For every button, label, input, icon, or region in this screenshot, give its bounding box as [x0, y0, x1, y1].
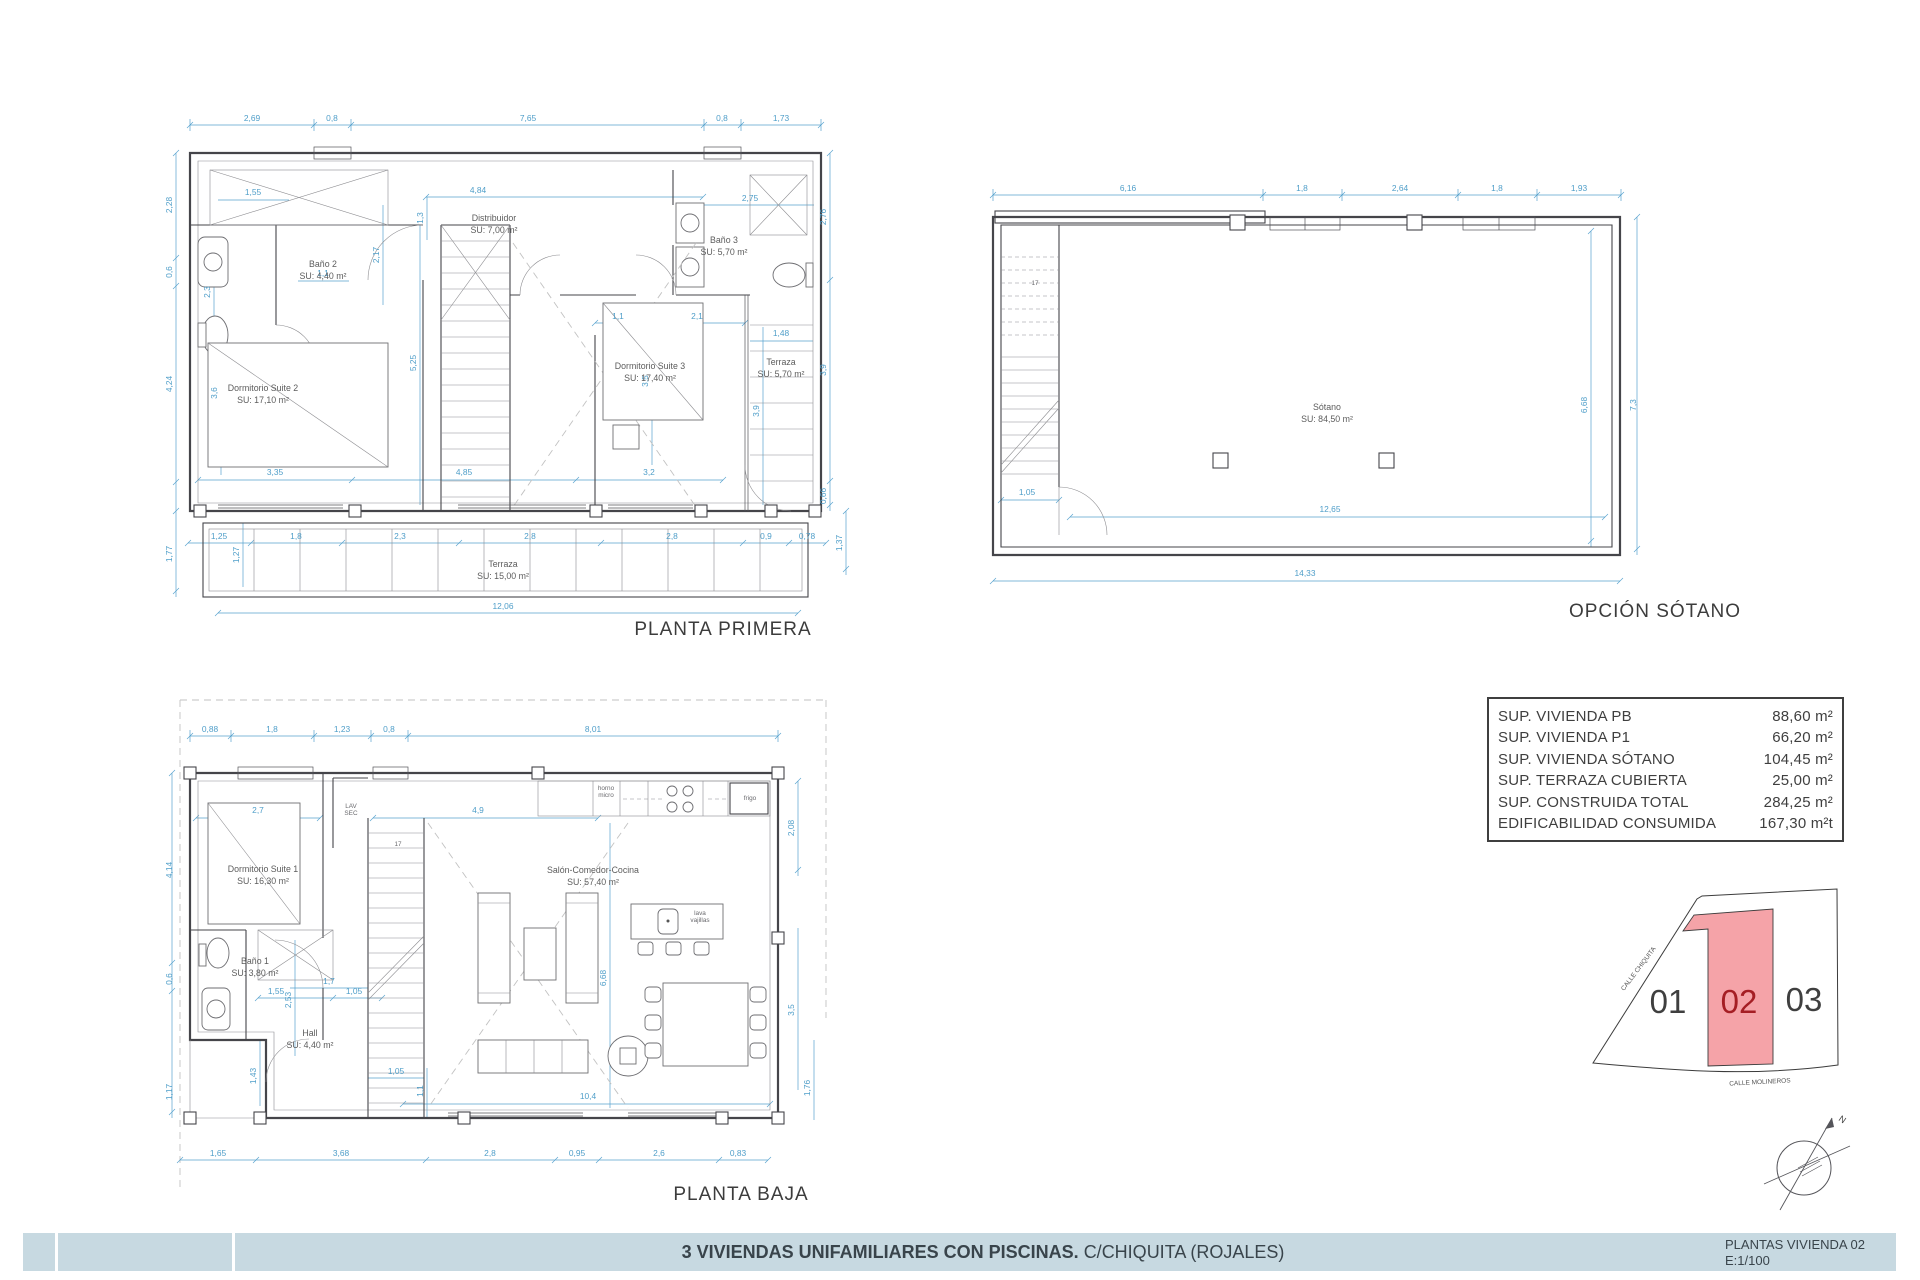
dim-label: 1,1	[415, 1085, 425, 1097]
opcion-sotano-drawing: 6,161,82,641,81,931,0512,656,687,314,33 …	[975, 165, 1675, 630]
room-label: Baño 1SU: 3,80 m²	[232, 956, 279, 978]
dim-label: 1,37	[834, 535, 844, 552]
dim-label: 1,3	[415, 212, 425, 224]
dim-label: 4,9	[472, 805, 484, 815]
dim-label: 1,05	[388, 1066, 405, 1076]
dim-label: 3,2	[643, 467, 655, 477]
dim-label: 0,83	[730, 1148, 747, 1158]
dim-label: 0,95	[569, 1148, 586, 1158]
dim-label: 4,85	[456, 467, 473, 477]
dim-label: 0,6	[164, 973, 174, 985]
row-value: 284,25 m²	[1764, 792, 1833, 813]
dim-label: 3,6	[209, 387, 219, 399]
room-label: hornomicro	[598, 785, 615, 799]
sheet-scale: E:1/100	[1725, 1253, 1865, 1269]
dimension-labels: 6,161,82,641,81,931,0512,656,687,314,33	[1019, 183, 1638, 578]
dim-label: 1,8	[290, 531, 302, 541]
dim-label: 12,65	[1320, 504, 1341, 514]
sheet-info: PLANTAS VIVIENDA 02 E:1/100	[1725, 1237, 1865, 1269]
row-value: 25,00 m²	[1772, 770, 1833, 791]
dim-label: 6,16	[1120, 183, 1137, 193]
dim-label: 1,7	[323, 976, 335, 986]
table-row: SUP. CONSTRUIDA TOTAL284,25 m²	[1498, 792, 1833, 813]
dim-label: 0,8	[326, 113, 338, 123]
dim-label: 1,17	[164, 1084, 174, 1101]
dim-label: 0,78	[799, 531, 816, 541]
room-label: frigo	[744, 795, 757, 802]
dim-label: 0,6	[164, 266, 174, 278]
room-label: TerrazaSU: 5,70 m²	[758, 357, 805, 379]
plan-title-sotano: OPCIÓN SÓTANO	[1569, 600, 1741, 622]
room-labels: SótanoSU: 84,50 m²	[1301, 402, 1353, 424]
surface-area-table: SUP. VIVIENDA PB88,60 m² SUP. VIVIENDA P…	[1487, 697, 1844, 842]
dim-label: 2,8	[484, 1148, 496, 1158]
plot-03-label: 03	[1786, 981, 1823, 1018]
row-label: EDIFICABILIDAD CONSUMIDA	[1498, 813, 1716, 834]
row-label: SUP. TERRAZA CUBIERTA	[1498, 770, 1687, 791]
dim-label: 1,8	[266, 724, 278, 734]
row-label: SUP. VIVIENDA SÓTANO	[1498, 749, 1675, 770]
dim-label: 1,05	[1019, 487, 1036, 497]
dim-label: 1,8	[1491, 183, 1503, 193]
dim-label: 1,43	[248, 1068, 258, 1085]
appliance-labels: LAVSEC17hornomicrofrigolavavajillas	[344, 785, 756, 924]
row-value: 66,20 m²	[1772, 727, 1833, 748]
planta-baja-drawing: 0,881,81,230,88,012,74,92,083,51,764,140…	[158, 688, 858, 1233]
dimension-lines	[990, 189, 1640, 584]
room-label: 17	[394, 841, 402, 848]
site-plot-diagram: 01 02 03 CALLE CHIQUITA CALLE MOLINEROS	[1580, 878, 1860, 1096]
dim-label: 3,9	[751, 405, 761, 417]
dim-label: 2,8	[524, 531, 536, 541]
planta-primera-drawing: 2,690,87,650,81,731,554,842,751,32,172,3…	[158, 75, 858, 650]
dim-label: 1,55	[245, 187, 262, 197]
dim-label: 3,5	[786, 1004, 796, 1016]
room-label: Salón-Comedor-CocinaSU: 57,40 m²	[547, 865, 639, 887]
footer-title-bar: 3 VIVIENDAS UNIFAMILIARES CON PISCINAS. …	[235, 1233, 1896, 1271]
dim-label: 1,77	[164, 546, 174, 563]
dim-label: 2,3	[394, 531, 406, 541]
dim-label: 1,1	[612, 311, 624, 321]
dim-label: 2,08	[786, 820, 796, 837]
table-row: EDIFICABILIDAD CONSUMIDA167,30 m²t	[1498, 813, 1833, 834]
room-label: DistribuidorSU: 7,00 m²	[471, 213, 518, 235]
planta-baja-walls	[184, 767, 784, 1124]
table-row: SUP. TERRAZA CUBIERTA25,00 m²	[1498, 770, 1833, 791]
table-row: SUP. VIVIENDA P166,20 m²	[1498, 727, 1833, 748]
room-label: TerrazaSU: 15,00 m²	[477, 559, 529, 581]
table-row: SUP. VIVIENDA SÓTANO104,45 m²	[1498, 749, 1833, 770]
dim-label: 4,14	[164, 862, 174, 879]
dim-label: 2,64	[1392, 183, 1409, 193]
room-label: HallSU: 4,40 m²	[287, 1028, 334, 1050]
dim-label: 0,88	[202, 724, 219, 734]
row-value: 167,30 m²t	[1759, 813, 1833, 834]
room-label: SótanoSU: 84,50 m²	[1301, 402, 1353, 424]
dim-label: 7,3	[1628, 399, 1638, 411]
room-label: Baño 3SU: 5,70 m²	[701, 235, 748, 257]
dim-label: 0,66	[818, 488, 828, 505]
project-title-bold: 3 VIVIENDAS UNIFAMILIARES CON PISCINAS.	[682, 1242, 1079, 1262]
row-label: SUP. CONSTRUIDA TOTAL	[1498, 792, 1689, 813]
dim-label: 1,48	[773, 328, 790, 338]
dim-label: 4,24	[164, 376, 174, 393]
north-compass-icon: N	[1752, 1102, 1872, 1217]
dim-label: 0,8	[716, 113, 728, 123]
dim-label: 2,3	[202, 286, 212, 298]
dim-label: 2,17	[371, 247, 381, 264]
dim-label: 7,65	[520, 113, 537, 123]
dim-label: 1,93	[1571, 183, 1588, 193]
dim-label: 6,68	[1579, 397, 1589, 414]
dim-label: 2,8	[666, 531, 678, 541]
dim-label: 1,25	[211, 531, 228, 541]
dim-label: 1,65	[210, 1148, 227, 1158]
dim-label: 2,7	[252, 805, 264, 815]
project-title: 3 VIVIENDAS UNIFAMILIARES CON PISCINAS. …	[682, 1242, 1285, 1263]
footer-block-small	[23, 1233, 55, 1271]
table-row: SUP. VIVIENDA PB88,60 m²	[1498, 706, 1833, 727]
plot-01-label: 01	[1650, 983, 1687, 1020]
dim-label: 0,9	[760, 531, 772, 541]
row-label: SUP. VIVIENDA P1	[1498, 727, 1630, 748]
dim-label: 1,8	[1296, 183, 1308, 193]
dim-label: 2,76	[818, 209, 828, 226]
footer-block-medium	[58, 1233, 232, 1271]
project-title-location: C/CHIQUITA (ROJALES)	[1084, 1242, 1285, 1262]
stair-count-label: 17	[1031, 280, 1039, 287]
dim-label: 1,27	[231, 547, 241, 564]
dim-label: 14,33	[1295, 568, 1316, 578]
dim-label: 1,73	[773, 113, 790, 123]
dim-label: 6,68	[598, 970, 608, 987]
dim-label: 2,6	[653, 1148, 665, 1158]
dim-label: 3,9	[818, 364, 828, 376]
dim-label: 4,84	[470, 185, 487, 195]
dim-label: 1,55	[268, 986, 285, 996]
dim-label: 5,25	[408, 355, 418, 372]
dim-label: 3,68	[333, 1148, 350, 1158]
dim-label: 2,75	[742, 193, 759, 203]
dim-label: 3,35	[267, 467, 284, 477]
dim-label: 1,05	[346, 986, 363, 996]
dim-label: 1,23	[334, 724, 351, 734]
row-value: 88,60 m²	[1772, 706, 1833, 727]
sheet-name: PLANTAS VIVIENDA 02	[1725, 1237, 1865, 1253]
row-value: 104,45 m²	[1764, 749, 1833, 770]
dim-label: 1,76	[802, 1080, 812, 1097]
plot-02-label: 02	[1721, 983, 1758, 1020]
dim-label: 8,01	[585, 724, 602, 734]
room-label: 17	[1031, 280, 1039, 287]
dim-label: 0,8	[383, 724, 395, 734]
street-label-bottom: CALLE MOLINEROS	[1729, 1077, 1791, 1087]
dim-label: 2,69	[244, 113, 261, 123]
sotano-walls	[993, 211, 1620, 555]
dim-label: 2,53	[283, 992, 293, 1009]
dim-label: 10,4	[580, 1091, 597, 1101]
plan-title-primera: PLANTA PRIMERA	[634, 619, 811, 640]
dim-label: 2,28	[164, 197, 174, 214]
north-label: N	[1837, 1113, 1848, 1125]
row-label: SUP. VIVIENDA PB	[1498, 706, 1632, 727]
plan-title-baja: PLANTA BAJA	[673, 1184, 808, 1205]
dim-label: 2,1	[691, 311, 703, 321]
room-label: LAVSEC	[344, 803, 358, 817]
dim-label: 12,06	[493, 601, 514, 611]
